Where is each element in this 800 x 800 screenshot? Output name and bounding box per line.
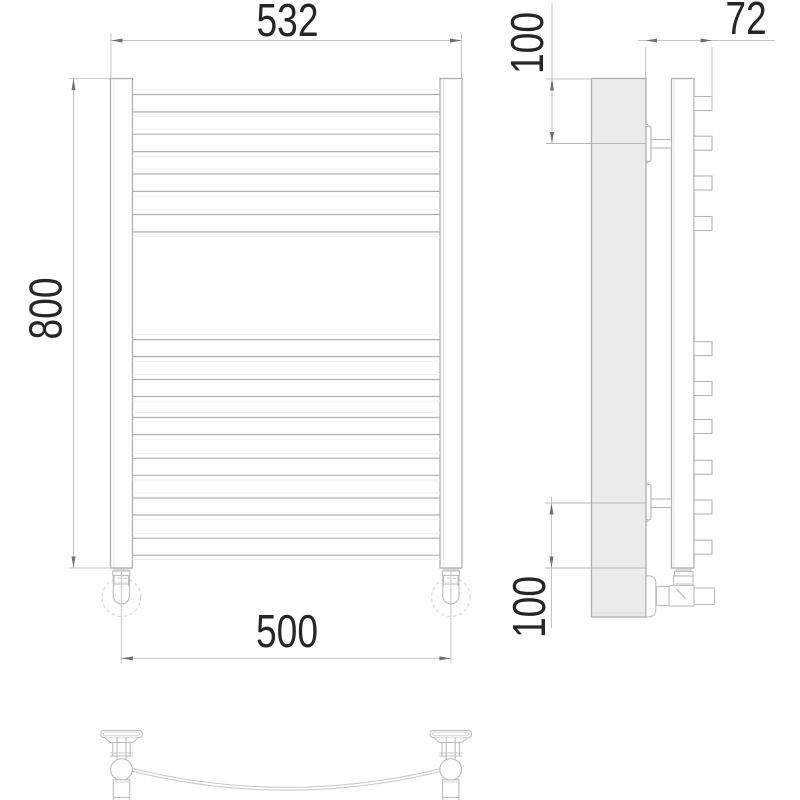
svg-text:100: 100 <box>501 12 553 74</box>
svg-text:100: 100 <box>503 576 555 638</box>
svg-text:500: 500 <box>256 605 318 657</box>
svg-text:72: 72 <box>725 0 766 44</box>
svg-text:800: 800 <box>20 277 72 339</box>
svg-text:532: 532 <box>256 0 318 46</box>
